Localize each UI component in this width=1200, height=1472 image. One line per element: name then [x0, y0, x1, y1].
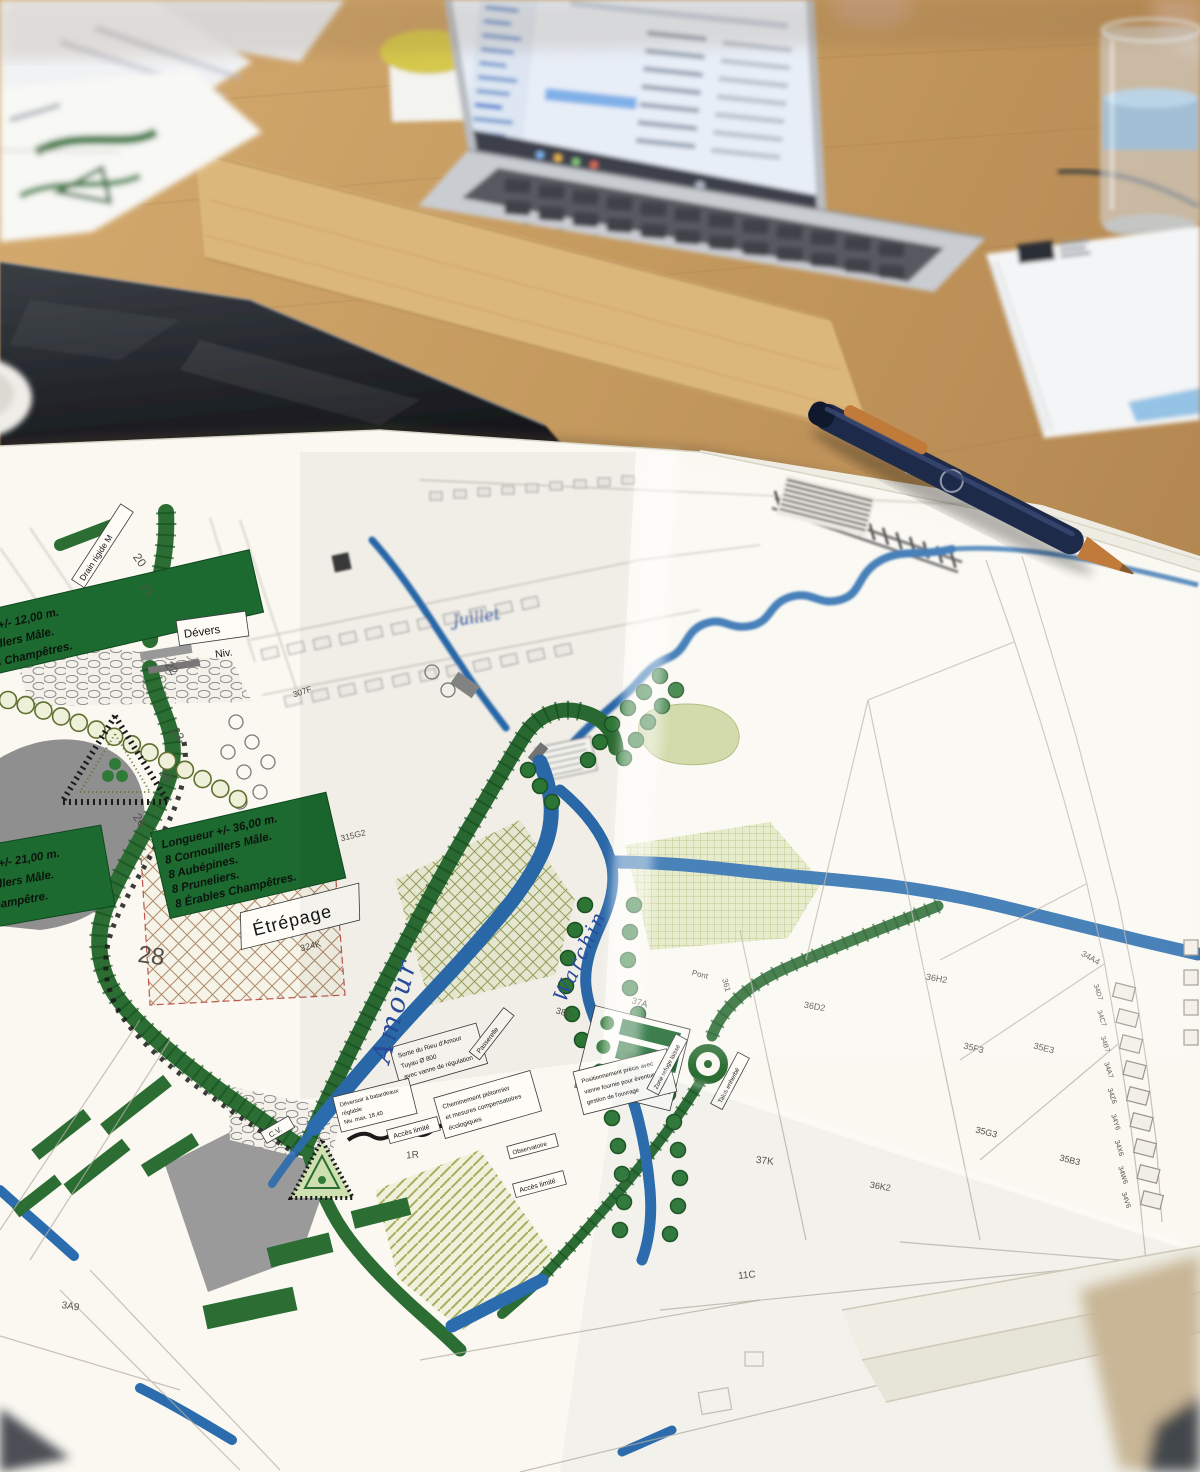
parcel-28: 28: [136, 941, 166, 971]
water-glass: [1100, 19, 1200, 238]
photo-canvas: Juillet: [0, 0, 1200, 1472]
parcel-1r: 1R: [406, 1150, 420, 1162]
photo-meeting-table: Juillet: [0, 0, 1200, 1472]
label-niv-text: Niv.: [214, 646, 233, 660]
